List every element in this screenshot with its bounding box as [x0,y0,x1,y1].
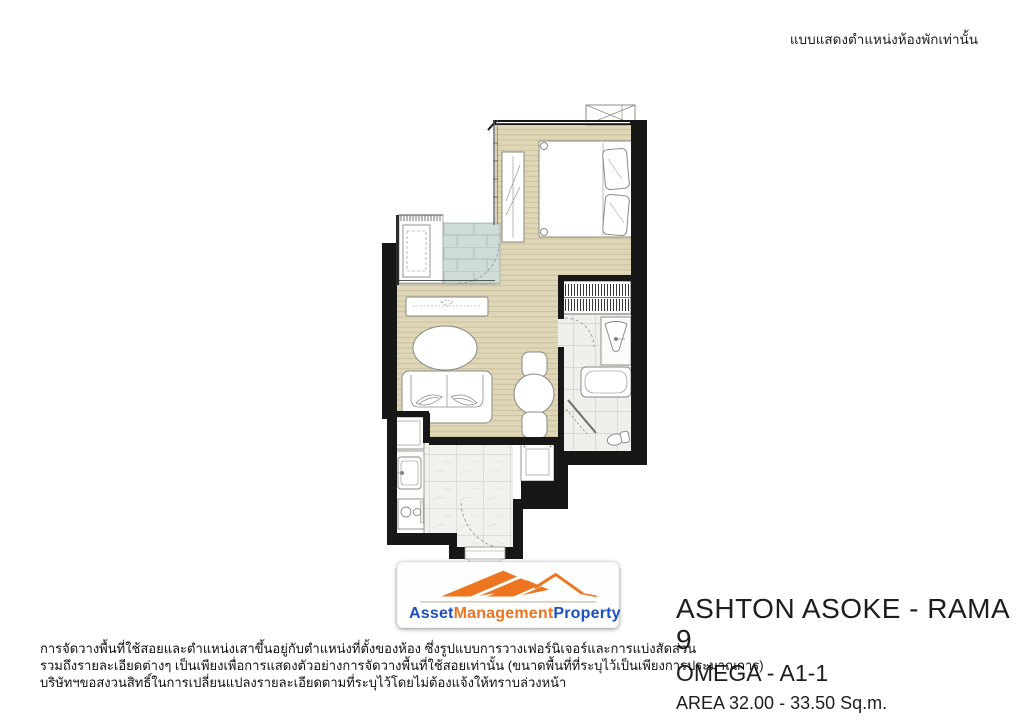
balcony [403,225,430,277]
unit-area: AREA 32.00 - 33.50 Sq.m. [676,694,1024,714]
wet-area-tiles [443,223,500,284]
disclaimer-line-3: บริษัทฯขอสงวนสิทธิ์ในการเปลี่ยนแปลงรายละ… [40,674,764,691]
disclaimer-line-1: การจัดวางพื้นที่ใช้สอยและตำแหน่งเสาขึ้นอ… [40,640,764,657]
unit-position-note: แบบแสดงตำแหน่งห้องพักเท่านั้น [790,28,978,50]
appliance-knob [550,446,552,448]
mountain-logo-icon [406,564,610,606]
disclaimer-text: การจัดวางพื้นที่ใช้สอยและตำแหน่งเสาขึ้นอ… [40,640,764,691]
company-logo: Asset Management Property [397,562,619,628]
logo-wordmark: Asset Management Property [397,605,619,623]
tv-console [406,297,488,316]
floor-plan-drawing [375,103,655,563]
bed-knob [541,143,548,150]
dining-chair-top [522,352,547,377]
bathtub [581,367,631,397]
dining-table [514,374,554,414]
entrance-threshold [465,547,505,563]
logo-word-property: Property [553,605,620,623]
stove-handle [421,501,424,523]
logo-word-management: Management [454,605,554,623]
hanger-wardrobe [563,281,631,314]
floor-plan [375,103,655,563]
coffee-table [413,326,477,370]
logo-word-asset: Asset [409,605,454,623]
pillow [602,194,629,236]
appliance-knob [524,446,526,448]
page: แบบแสดงตำแหน่งห้องพักเท่านั้น [0,0,1024,723]
pillow [602,148,629,190]
dining-chair-bottom [522,412,547,438]
bed-knob [541,229,548,236]
disclaimer-line-2: รวมถึงรายละเอียดต่างๆ เป็นเพียงเพื่อการแ… [40,657,764,674]
